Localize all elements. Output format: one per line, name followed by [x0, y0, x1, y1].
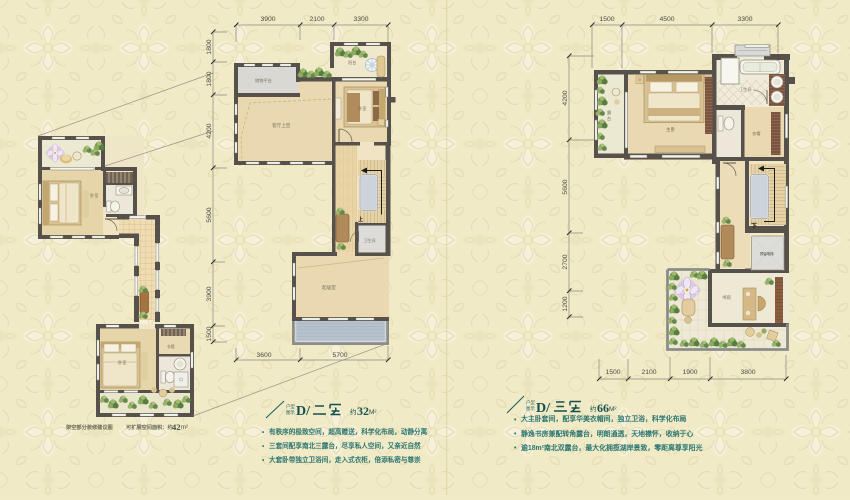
svg-text:卫生间: 卫生间	[364, 238, 376, 243]
svg-text:3300: 3300	[353, 16, 368, 23]
svg-text:户型: 户型	[286, 403, 295, 410]
svg-text:卧室: 卧室	[358, 105, 366, 112]
svg-text:3800: 3800	[740, 369, 755, 376]
svg-text:1800: 1800	[206, 39, 213, 54]
svg-text:1500: 1500	[599, 16, 614, 23]
svg-text:有秩序的极致空间，超高赠送，科学化布局，动静分离: 有秩序的极致空间，超高赠送，科学化布局，动静分离	[269, 427, 428, 436]
svg-text:1900: 1900	[682, 369, 697, 376]
svg-text:2700: 2700	[562, 254, 569, 269]
svg-text:32: 32	[357, 404, 369, 418]
svg-text:M²: M²	[609, 406, 617, 413]
svg-text:主卧: 主卧	[666, 126, 676, 133]
svg-text:卧室: 卧室	[90, 192, 98, 199]
svg-text:66: 66	[597, 401, 609, 415]
svg-text:台: 台	[607, 115, 611, 122]
svg-text:架空部分装修建议图: 架空部分装修建议图	[65, 423, 113, 431]
svg-text:1800: 1800	[206, 71, 213, 86]
svg-text:m²: m²	[181, 425, 188, 431]
svg-text:4500: 4500	[659, 16, 674, 23]
svg-text:3900: 3900	[206, 286, 213, 301]
svg-text:客厅上空: 客厅上空	[272, 122, 291, 129]
svg-text:M²: M²	[369, 409, 377, 416]
svg-text:2100: 2100	[641, 369, 656, 376]
svg-text:D/: D/	[296, 404, 311, 419]
svg-text:1500: 1500	[605, 369, 620, 376]
svg-text:D/: D/	[536, 401, 551, 416]
svg-text:大套卧带独立卫浴间，走入式衣柜，倍添私密与尊崇: 大套卧带独立卫浴间，走入式衣柜，倍添私密与尊崇	[269, 455, 421, 464]
svg-text:下: 下	[751, 223, 757, 230]
svg-text:42: 42	[172, 422, 181, 432]
svg-text:卫生间: 卫生间	[740, 87, 752, 92]
svg-text:书房: 书房	[722, 294, 732, 301]
svg-text:4200: 4200	[562, 90, 569, 105]
svg-text:静逸书房兼配转角露台，明朗通透，天地襟怀，收纳于心: 静逸书房兼配转角露台，明朗通透，天地襟怀，收纳于心	[521, 429, 693, 438]
svg-text:衣帽: 衣帽	[752, 130, 760, 137]
svg-text:3300: 3300	[737, 16, 752, 23]
svg-text:户型: 户型	[526, 399, 535, 406]
svg-text:3900: 3900	[260, 16, 275, 23]
svg-text:1200: 1200	[562, 296, 569, 311]
svg-text:可扩展空间面积：约: 可扩展空间面积：约	[126, 423, 173, 431]
svg-text:衣帽: 衣帽	[167, 344, 175, 349]
svg-text:阳台: 阳台	[348, 59, 356, 66]
svg-text:5700: 5700	[332, 352, 347, 359]
svg-text:上: 上	[358, 216, 363, 223]
svg-text:大主卧套间，配享华美衣帽间，独立卫浴，科学化布局: 大主卧套间，配享华美衣帽间，独立卫浴，科学化布局	[521, 414, 686, 423]
svg-text:5600: 5600	[562, 179, 569, 194]
svg-text:起居室: 起居室	[322, 284, 336, 291]
svg-text:储物平台: 储物平台	[255, 77, 272, 84]
svg-text:三套间配享南北三露台，尽享私人空间，又亲近自然: 三套间配享南北三露台，尽享私人空间，又亲近自然	[269, 441, 421, 450]
svg-text:2100: 2100	[309, 16, 324, 23]
svg-text:约: 约	[590, 404, 597, 413]
svg-text:约: 约	[350, 407, 357, 416]
svg-text:3600: 3600	[256, 352, 271, 359]
svg-text:5600: 5600	[206, 207, 213, 222]
svg-text:1500: 1500	[206, 326, 213, 341]
svg-text:4200: 4200	[206, 123, 213, 138]
svg-text:逾18m²南北双露台，最大化拥揽湖岸景致，零距离尊享阳光: 逾18m²南北双露台，最大化拥揽湖岸景致，零距离尊享阳光	[521, 443, 703, 452]
svg-text:预留电梯: 预留电梯	[760, 251, 774, 256]
svg-text:卧室: 卧室	[118, 359, 126, 366]
